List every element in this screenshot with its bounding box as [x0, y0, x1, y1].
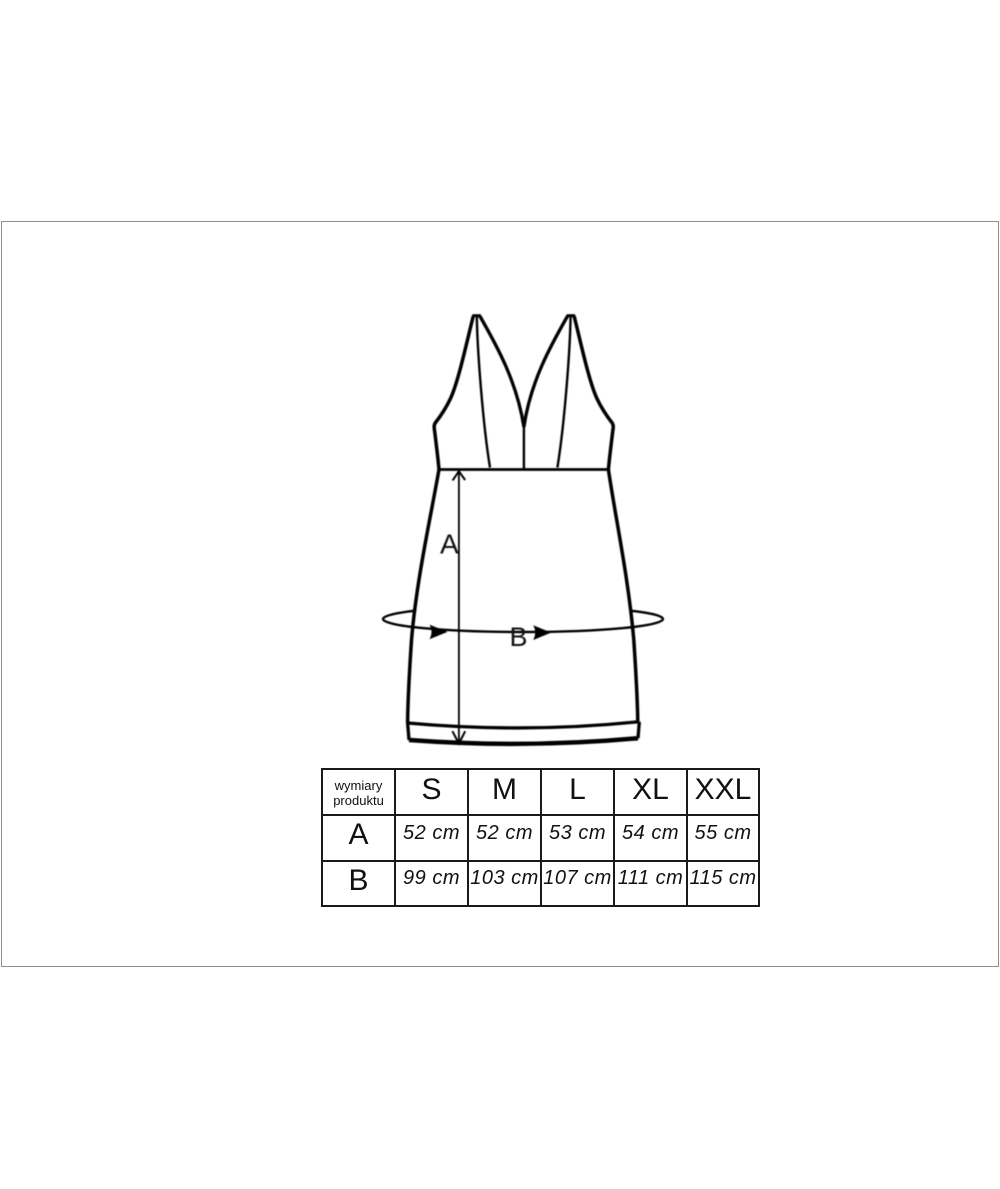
svg-text:A: A — [440, 528, 459, 559]
svg-text:B: B — [510, 622, 528, 652]
